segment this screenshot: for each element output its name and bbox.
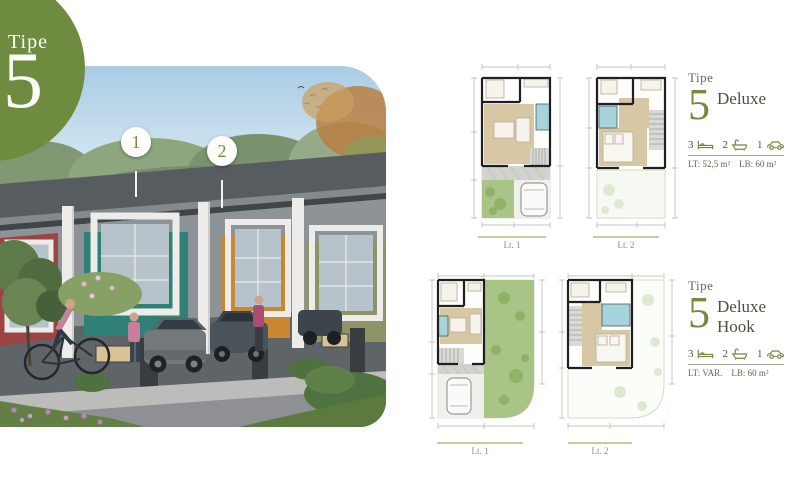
- bed-icon: [697, 139, 714, 151]
- marker-2: 2: [207, 136, 237, 166]
- carport-spec: 1: [757, 139, 785, 151]
- deluxe-lt2-label: Lt. 2: [593, 240, 659, 250]
- hook-area-lt: LT: VAR.: [688, 368, 722, 378]
- plan-stairs: [438, 348, 464, 364]
- hook-type-name-line1: Deluxe: [717, 297, 766, 317]
- hook-lt1-label: Lt. 1: [437, 446, 523, 456]
- deluxe-lt1-label: Lt. 1: [478, 240, 546, 250]
- hook-lt2-rule: [568, 442, 632, 444]
- bath-icon: [731, 139, 748, 151]
- deluxe-specs: 3 2 1: [688, 139, 798, 151]
- fin-wall-2-shade: [208, 202, 210, 354]
- bathroom-spec: 2: [723, 139, 749, 151]
- bedroom-spec: 3: [688, 139, 714, 151]
- carport-count: 1: [757, 348, 763, 360]
- deluxe-area-lt: LT: 52,5 m²: [688, 159, 730, 169]
- floorplan-deluxe-lt1: [468, 62, 568, 234]
- bathroom-spec: 2: [723, 348, 749, 360]
- plan-bed: [596, 334, 626, 362]
- bed-icon: [697, 348, 714, 360]
- hook-type-name: Deluxe Hook: [717, 297, 766, 336]
- bedroom-count: 3: [688, 348, 694, 360]
- plan-bathroom: [438, 316, 448, 336]
- plan-car: [447, 378, 471, 414]
- marker-2-line: [221, 180, 223, 208]
- plan-bed: [603, 132, 633, 162]
- hook-lt2-label: Lt. 2: [568, 446, 632, 456]
- hook-divider: [688, 364, 784, 365]
- marker-2-number: 2: [218, 141, 227, 162]
- plan-hall: [582, 302, 602, 330]
- hook-specs: 3 2 1: [688, 348, 798, 360]
- plan-stairs: [568, 306, 582, 346]
- plan-bathroom: [536, 104, 550, 130]
- floorplan-hook-lt1: [428, 272, 548, 438]
- plan-bathroom: [602, 304, 630, 326]
- hook-area-lb: LB: 60 m²: [731, 368, 768, 378]
- floorplan-hook-lt2: [558, 272, 678, 438]
- plan-stairs: [530, 148, 550, 166]
- deluxe-hook-header: Tipe 5 Deluxe Hook 3 2 1: [688, 278, 798, 378]
- plan-stairs: [649, 110, 665, 150]
- floorplan-deluxe-lt2: [583, 62, 683, 234]
- deluxe-lt1-rule: [478, 236, 546, 238]
- marker-1-line: [135, 171, 137, 197]
- bedroom-spec: 3: [688, 348, 714, 360]
- carport-count: 1: [757, 139, 763, 151]
- deluxe-lt2-rule: [593, 236, 659, 238]
- marker-1-number: 1: [132, 132, 141, 153]
- hook-lt1-rule: [437, 442, 523, 444]
- bathroom-count: 2: [723, 139, 729, 151]
- carport-spec: 1: [757, 348, 785, 360]
- car-icon: [766, 348, 785, 360]
- deluxe-type-number: 5: [688, 87, 710, 123]
- bathroom-count: 2: [723, 348, 729, 360]
- bath-icon: [731, 348, 748, 360]
- type-badge-number: 5: [3, 41, 43, 121]
- plan-car: [521, 183, 547, 216]
- hook-type-number: 5: [688, 295, 710, 331]
- plan-bathroom: [599, 106, 617, 128]
- plan-terrace: [482, 166, 550, 180]
- bedroom-count: 3: [688, 139, 694, 151]
- deluxe-type-name: Deluxe: [717, 89, 766, 109]
- deluxe-header: Tipe 5 Deluxe 3 2 1: [688, 70, 798, 169]
- hook-type-name-line2: Hook: [717, 317, 766, 337]
- deluxe-divider: [688, 155, 784, 156]
- marker-1: 1: [121, 127, 151, 157]
- car-icon: [766, 139, 785, 151]
- brochure-page: 1 2 Tipe 5: [0, 0, 800, 500]
- deluxe-area-lb: LB: 60 m²: [739, 159, 776, 169]
